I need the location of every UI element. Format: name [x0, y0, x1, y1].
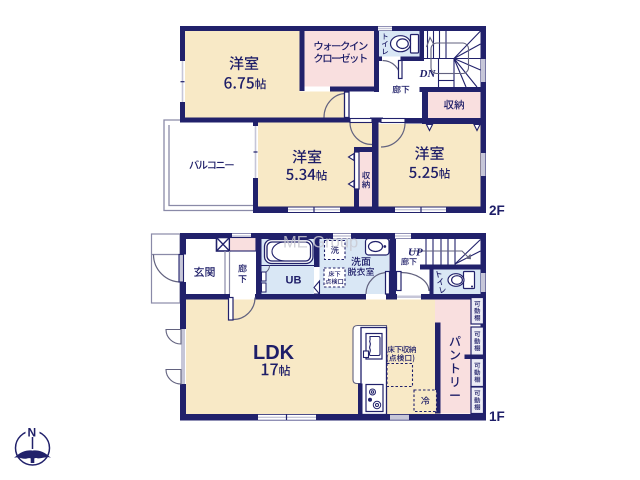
- svg-text:UP: UP: [408, 247, 423, 259]
- svg-text:1F: 1F: [489, 409, 505, 424]
- svg-text:2F: 2F: [489, 203, 505, 218]
- svg-text:DN: DN: [419, 68, 437, 80]
- svg-text:ME Group: ME Group: [283, 234, 358, 252]
- svg-text:LDK: LDK: [253, 342, 295, 364]
- svg-text:UB: UB: [286, 275, 302, 287]
- svg-text:N: N: [28, 426, 37, 440]
